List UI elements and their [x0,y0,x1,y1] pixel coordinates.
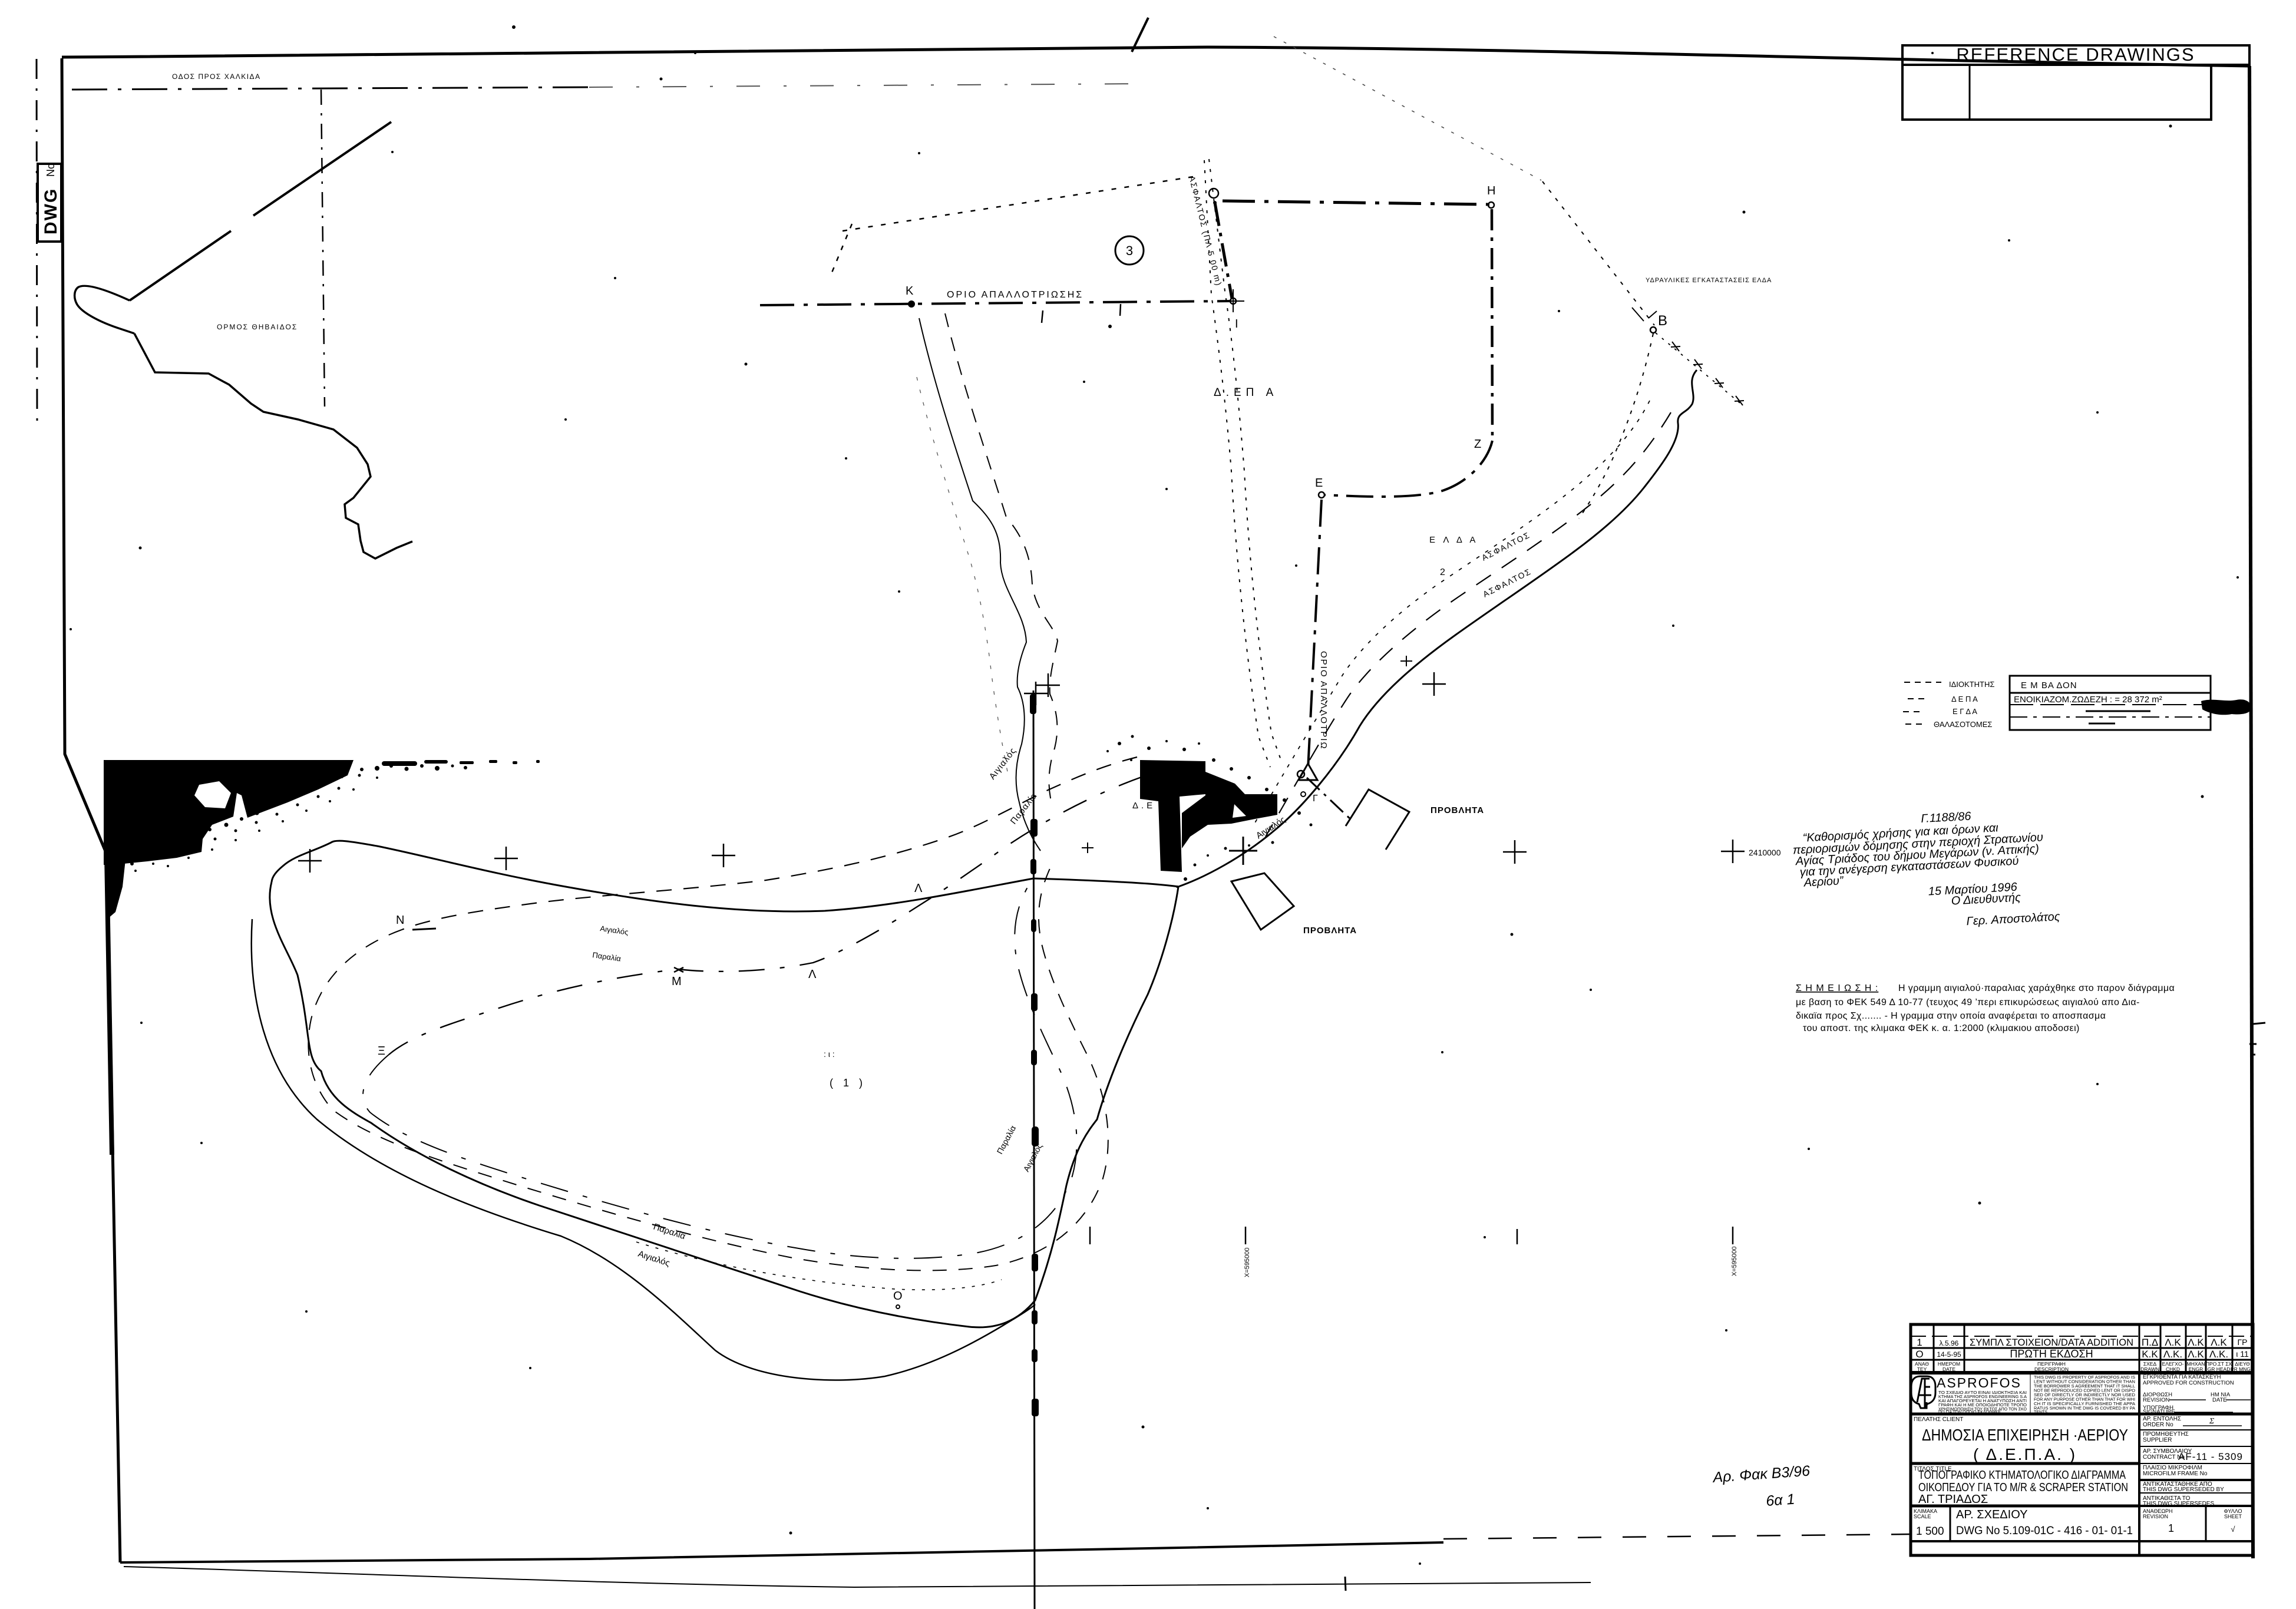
svg-text:λ.5.96: λ.5.96 [1940,1339,1959,1347]
svg-text:N: N [396,914,404,927]
svg-text:Ζ: Ζ [1474,438,1481,451]
svg-text:Δ.Ε: Δ.Ε [1132,801,1155,811]
svg-text:Αερίου”: Αερίου” [1803,874,1844,890]
svg-text:ΠΡΩΤΗ ΕΚΔΟΣΗ: ΠΡΩΤΗ ΕΚΔΟΣΗ [2010,1348,2093,1360]
svg-text:ΠΡΟΒΛΗΤΑ: ΠΡΟΒΛΗΤΑ [1303,926,1357,936]
svg-text:No: No [45,163,57,177]
svg-text:ΣΥΜΠΛ ΣΤΟΙΧΕΙΟΝ/DATA ADDITIO: ΣΥΜΠΛ ΣΤΟΙΧΕΙΟΝ/DATA ADDITION [1970,1337,2133,1348]
svg-text:Δ.ΕΠ Α: Δ.ΕΠ Α [1214,386,1278,399]
svg-text:Λ: Λ [914,882,923,895]
svg-text:ΔΗΜΟΣΙΑ ΕΠΙΧΕΙΡΗΣΗ ·ΑΕΡΙΟΥ: ΔΗΜΟΣΙΑ ΕΠΙΧΕΙΡΗΣΗ ·ΑΕΡΙΟΥ [1922,1426,2128,1444]
svg-text:THIS DWG IS PROPERTY OF ASPROF: THIS DWG IS PROPERTY OF ASPROFOS AND IS [2034,1376,2135,1380]
svg-text:Χ=595000: Χ=595000 [1244,1248,1251,1277]
svg-text:( 1 ): ( 1 ) [830,1077,866,1089]
svg-text:με βαση το ΦΕΚ 549 Δ 10-7: με βαση το ΦΕΚ 549 Δ 10-77 (τευχος 49 ’π… [1796,997,2140,1007]
svg-text:ΕΝΟΙΚΙΑΖΟΜ.ΖΩΔΕΖΗ : = 28 372: ΕΝΟΙΚΙΑΖΟΜ.ΖΩΔΕΖΗ : = 28 372 m² [2014,695,2162,705]
svg-text:Λ.Κ: Λ.Κ [2188,1349,2204,1360]
svg-text:TENTS: TENTS [2034,1410,2047,1415]
svg-text:ΑΡ. ΣΧΕΔΙΟΥ: ΑΡ. ΣΧΕΔΙΟΥ [1956,1508,2027,1521]
svg-text:GR HEAD: GR HEAD [2208,1366,2231,1372]
svg-text:2: 2 [1440,567,1445,577]
svg-text:RATUS SHOWN IN THE DWG IS COVE: RATUS SHOWN IN THE DWG IS COVERED BY PA [2034,1407,2135,1411]
svg-text:ΟΙΚΟΠΕΔΟΥ ΓΙΑ ΤΟ M/R & SCRA: ΟΙΚΟΠΕΔΟΥ ΓΙΑ ΤΟ M/R & SCRAPER STATION [1918,1481,2128,1494]
svg-text:DWG: DWG [41,188,61,234]
svg-text:Δ Ε Π Α: Δ Ε Π Α [1951,695,1978,703]
svg-text:ΠΕΛΑΤΗΣ CLIENT: ΠΕΛΑΤΗΣ CLIENT [1914,1416,1963,1423]
svg-text:M: M [672,975,682,988]
svg-text:1: 1 [1917,1337,1922,1348]
svg-text:SED OF DIRECTLY OR INDIRECTLY: SED OF DIRECTLY OR INDIRECTLY NOR USED [2034,1393,2135,1397]
svg-text:√: √ [2231,1525,2235,1534]
svg-text:Ε Μ ΒΑ ΔΟΝ: Ε Μ ΒΑ ΔΟΝ [2021,680,2077,690]
svg-text:ΙΔΙΟΚΤΗΤΗΣ: ΙΔΙΟΚΤΗΤΗΣ [1949,680,1994,689]
svg-text:LENT WITHOUT CONSIDERATION OTH: LENT WITHOUT CONSIDERATION OTHER THAN [2034,1380,2135,1385]
svg-text:O: O [893,1290,903,1303]
svg-text:SHEET: SHEET [2224,1514,2242,1519]
svg-text:DATE: DATE [1942,1366,1955,1372]
svg-text:Λ.Κ: Λ.Κ [2165,1337,2181,1348]
svg-text:ΤΟ ΣΧΕΔΙΟ ΑΥΤΟ ΕΙΝΑΙ ΙΔΙΟΚΤΗΣΙ: ΤΟ ΣΧΕΔΙΟ ΑΥΤΟ ΕΙΝΑΙ ΙΔΙΟΚΤΗΣΙΑ ΚΑΙ [1938,1391,2027,1395]
svg-text:ΥΔΡΑΥΛΙΚΕΣ ΕΓΚΑΤΑΣΤΑΣΕΙΣ ΕΛΔ: ΥΔΡΑΥΛΙΚΕΣ ΕΓΚΑΤΑΣΤΑΣΕΙΣ ΕΛΔΑ [1646,277,1772,284]
svg-text:ΟΔΟΣ ΠΡΟΣ ΧΑΛΚΙΔΑ: ΟΔΟΣ ΠΡΟΣ ΧΑΛΚΙΔΑ [172,72,261,81]
svg-text:PR MNGR: PR MNGR [2231,1366,2254,1372]
svg-text:Κ.Κ: Κ.Κ [2142,1349,2158,1360]
svg-text:CH IT IS SPECIFICALLY FURNISHE: CH IT IS SPECIFICALLY FURNISHED THE APPA [2034,1402,2135,1406]
svg-text:δικαϊα προς Σχ....... - Η γ: δικαϊα προς Σχ....... - Η γραμμα στην οπ… [1796,1011,2106,1021]
svg-text:DWG No 5.109-01C - 416 - 01: DWG No 5.109-01C - 416 - 01- 01-1 [1956,1525,2133,1537]
svg-text:Η γραμμη αιγιαλού·παραλιας: Η γραμμη αιγιαλού·παραλιας χαράχθηκε στο… [1898,983,2175,993]
svg-text:DATE: DATE [2212,1397,2227,1403]
svg-text:Λ.Κ: Λ.Κ [2188,1337,2204,1348]
svg-text:1 500: 1 500 [1916,1525,1944,1538]
svg-text:NOT BE REPRODUCED COPIED LENT: NOT BE REPRODUCED COPIED LENT OR DISPO [2034,1389,2136,1393]
svg-text:ΤΕΥ: ΤΕΥ [1917,1366,1927,1372]
svg-text:6α 1: 6α 1 [1765,1491,1795,1509]
svg-text:SIGNATURE: SIGNATURE [2143,1409,2175,1415]
svg-text:1: 1 [2168,1522,2174,1534]
svg-text:MICROFILM FRAME No: MICROFILM FRAME No [2143,1471,2208,1477]
svg-text:Ε Λ Δ Α: Ε Λ Δ Α [1429,535,1478,545]
svg-text:FOR ANY PURPOSE OTHER THAN THA: FOR ANY PURPOSE OTHER THAN THAT FOR WHI [2034,1398,2135,1402]
svg-text:Ε Γ Δ Α: Ε Γ Δ Α [1953,707,1977,716]
svg-text:Λ.Κ.: Λ.Κ. [2163,1349,2182,1360]
svg-text:REVISION: REVISION [2143,1514,2168,1519]
svg-text:Σ: Σ [2209,1417,2215,1426]
svg-text:ENGR: ENGR [2189,1366,2204,1372]
svg-text:REFERENCE DRAWINGS: REFERENCE DRAWINGS [1956,44,2195,65]
svg-text:SCALE: SCALE [1914,1514,1931,1519]
svg-text:( Δ.Ε.Π.Α. ): ( Δ.Ε.Π.Α. ) [1973,1445,2077,1463]
svg-text:CHKD: CHKD [2166,1366,2180,1372]
svg-text:Ξ: Ξ [378,1045,385,1058]
svg-text:του αποστ. της κλιμακα ΦΕΚ: του αποστ. της κλιμακα ΦΕΚ κ. α. 1:2000 … [1803,1023,2080,1033]
svg-text:2410000: 2410000 [1749,848,1781,857]
svg-text:ΟΡΙΟ ΑΠΑΛΛΟΤΡΙΩΣΗΣ: ΟΡΙΟ ΑΠΑΛΛΟΤΡΙΩΣΗΣ [947,290,1083,300]
svg-text:ΚΑΙ ΑΠΑΓΟΡΕΥΕΤΑΙ Η ΑΝΑΤΥΠΩΣΗ Α: ΚΑΙ ΑΠΑΓΟΡΕΥΕΤΑΙ Η ΑΝΑΤΥΠΩΣΗ ΑΝΤΙ [1938,1399,2027,1403]
svg-text:ASPROFOS: ASPROFOS [1937,1375,2021,1390]
svg-text:Σ Η Μ Ε Ι Ω Σ Η :: Σ Η Μ Ε Ι Ω Σ Η : [1796,983,1878,993]
svg-text:14-5-95: 14-5-95 [1937,1350,1961,1359]
svg-text:DRAWN: DRAWN [2140,1366,2159,1372]
svg-text:ΠΡΟΒΛΗΤΑ: ΠΡΟΒΛΗΤΑ [1431,805,1484,815]
svg-text:B: B [1658,313,1667,329]
svg-text:ι 11: ι 11 [2236,1349,2249,1359]
svg-text:O: O [1915,1349,1923,1360]
svg-text:I: I [1235,318,1238,331]
svg-text:ORDER No: ORDER No [2143,1422,2173,1428]
svg-text:H: H [1487,184,1495,197]
svg-text:ΓΡ: ΓΡ [2237,1337,2247,1347]
svg-text:ΟΡΜΟΣ ΘΗΒΑΙΔΟΣ: ΟΡΜΟΣ ΘΗΒΑΙΔΟΣ [217,323,298,331]
svg-text:DESCRIPTION: DESCRIPTION [2034,1366,2069,1372]
svg-text:ΓΡΑΦΗ ΚΑΙ Η ΜΕ ΟΠΟΙΟΔΗΠΟΤΕ ΤΡΟ: ΓΡΑΦΗ ΚΑΙ Η ΜΕ ΟΠΟΙΟΔΗΠΟΤΕ ΤΡΟΠΟ [1938,1403,2027,1408]
svg-text:Λ.Κ: Λ.Κ [2211,1337,2227,1348]
svg-text:ΠΟ ΓΙΑ ΤΟΝ ΟΠΟΙΟ ΕΚΔΟΘΗΚΕ: ΠΟ ΓΙΑ ΤΟΝ ΟΠΟΙΟ ΕΚΔΟΘΗΚΕ [1938,1410,2001,1415]
svg-text:SUPPLIER: SUPPLIER [2143,1437,2172,1443]
svg-text:ΑΓ. ΤΡΙΑΔΟΣ: ΑΓ. ΤΡΙΑΔΟΣ [1918,1493,1988,1506]
svg-text:3: 3 [1126,243,1133,258]
svg-text:THE BORROWER S AGREEMENT THAT: THE BORROWER S AGREEMENT THAT IT SHALL [2034,1385,2135,1389]
svg-text:K: K [906,285,914,298]
svg-text:: ι :: : ι : [824,1049,835,1059]
svg-text:Χ=595000: Χ=595000 [1731,1247,1738,1276]
svg-text:Γ: Γ [1313,794,1318,804]
svg-text:APPROVED FOR CONSTRUCTION: APPROVED FOR CONSTRUCTION [2143,1380,2234,1386]
svg-text:REVISION: REVISION [2143,1397,2170,1403]
svg-text:Λ: Λ [808,968,817,981]
svg-text:Λ.Κ.: Λ.Κ. [2209,1349,2228,1360]
svg-text:Π.Δ: Π.Δ [2142,1337,2158,1348]
svg-text:AF-11 - 5309: AF-11 - 5309 [2178,1451,2243,1462]
svg-text:ΤΟΠΟΓΡΑΦΙΚΟ ΚΤΗΜΑΤΟΛΟΓΙΚΟ ΔΙ: ΤΟΠΟΓΡΑΦΙΚΟ ΚΤΗΜΑΤΟΛΟΓΙΚΟ ΔΙΑΓΡΑΜΜΑ [1918,1469,2126,1482]
svg-text:ΚΤΗΜΑ ΤΗΣ ASPROFOS ENGINEERING: ΚΤΗΜΑ ΤΗΣ ASPROFOS ENGINEERING S.A [1938,1395,2027,1399]
svg-text:Ε: Ε [1315,477,1323,490]
svg-text:THIS DWG SUPERSEDED BY: THIS DWG SUPERSEDED BY [2143,1486,2224,1493]
svg-text:ΘΑΛΑΣΟΤΟΜΕΣ: ΘΑΛΑΣΟΤΟΜΕΣ [1934,720,1992,729]
